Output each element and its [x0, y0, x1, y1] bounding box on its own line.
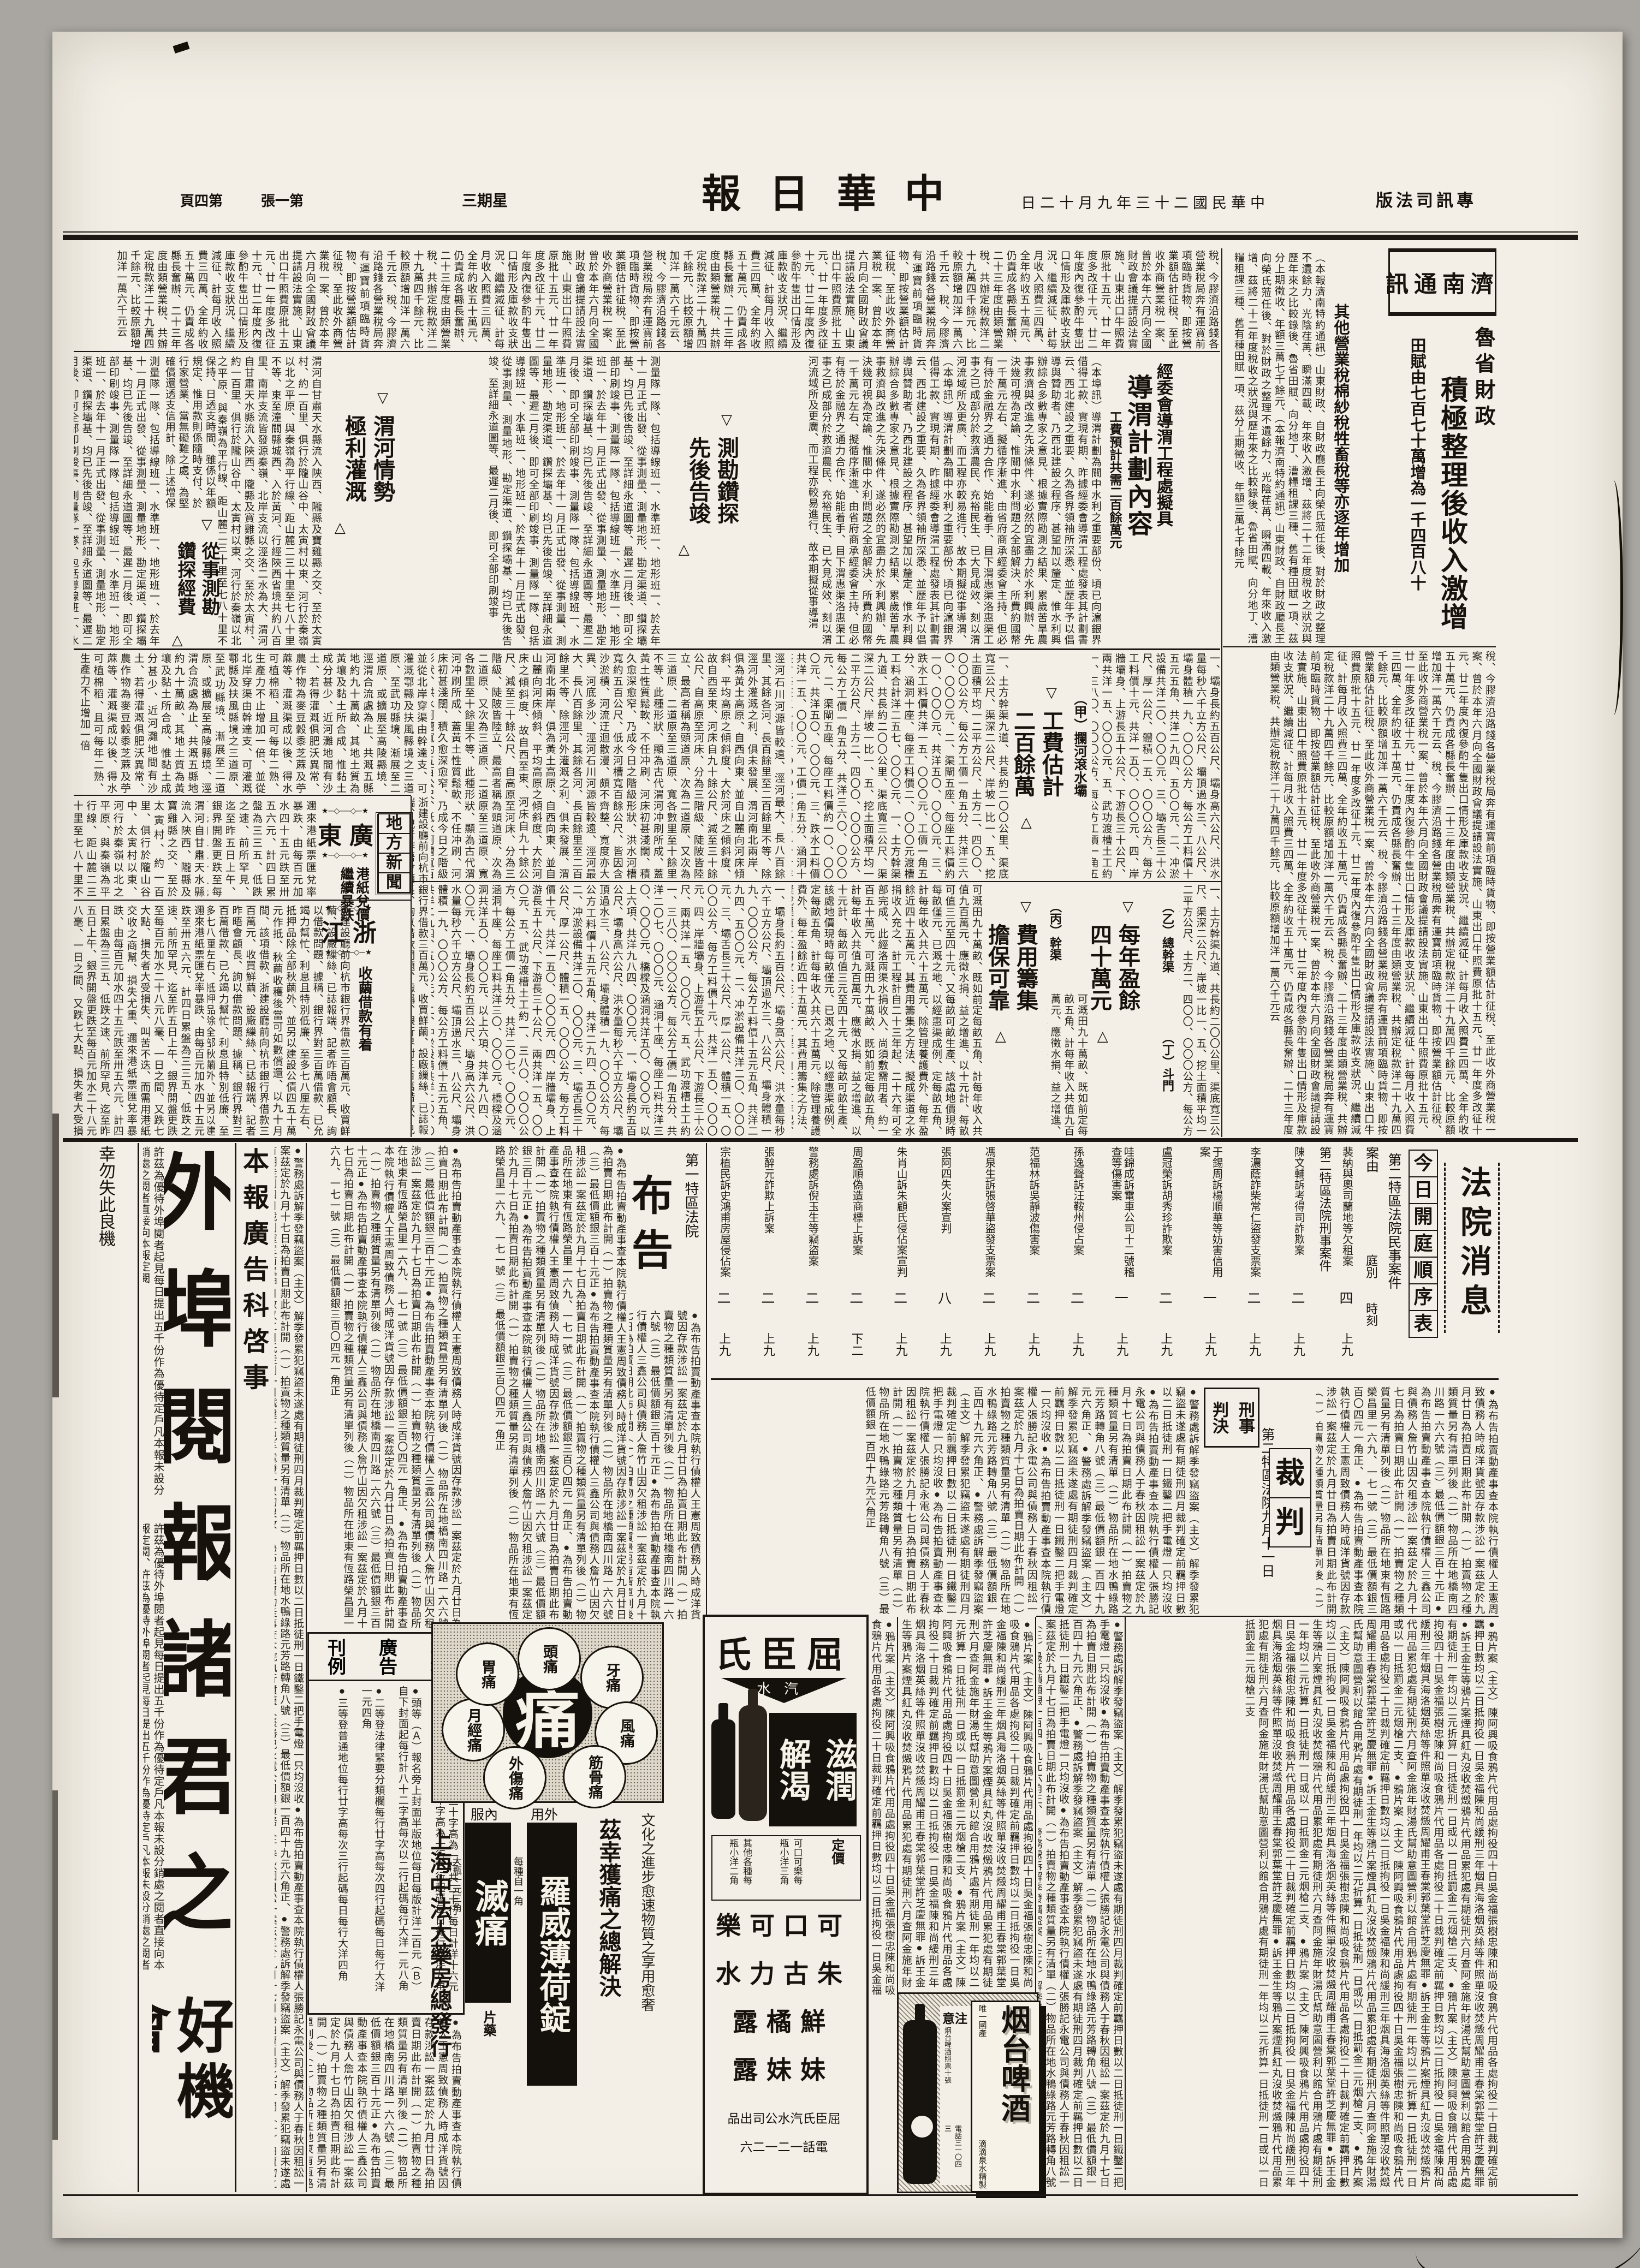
criminal-section-label: 第二特區法院刑事案件 — [1311, 1146, 1333, 1376]
masthead-date: 日二十月九年三十二國民華中 — [1021, 191, 1269, 212]
case-time: 下二 — [848, 1332, 865, 1356]
wavy-rule — [1444, 1163, 1446, 1333]
notice-body-b: ●為布告拍賣動產事查本院執行債權人王憲周致債務人時成洋貨號因存款涉訟一案茲定於九… — [464, 1145, 627, 1620]
case-time: 上九 — [1201, 1332, 1219, 1356]
case-court-number: 二 — [1291, 1288, 1305, 1307]
jinan-headline: 積極整理後收入激增 — [1428, 376, 1472, 648]
table-row: 李濃蔭詐柴常仁盜發支票案 二 上九 — [1241, 1146, 1267, 1376]
ad-dept-notice-title: 本報廣告科啓事 — [239, 1147, 272, 1415]
watsons-ad-box: 氏臣屈 水汽 滋潤 解渴 定價 可口可樂每瓶小洋三角 其他各種每瓶小洋二角 樂可… — [703, 1615, 869, 2195]
case-court-number: 二 — [805, 1288, 819, 1307]
table-row: 張阿四失火案宣判 八 上九 — [932, 1146, 958, 1376]
table-row: 馮泉生訴張啓華盜發支票案 二 上九 — [976, 1146, 1002, 1376]
case-name: 裴納與奧司蘭地等欠租案 — [1340, 1146, 1353, 1285]
watsons-products: 樂可口可水力古朱露橘鮮露妹妹 — [710, 1906, 857, 2086]
case-time: 上九 — [1068, 1332, 1086, 1356]
verdict-tag-criminal: 刑事 — [1233, 1401, 1257, 1434]
internal-use-label: 服內 — [471, 1804, 498, 1824]
subhead-marker-bottom: △ — [168, 632, 187, 648]
soda-bottle-icon — [711, 1719, 735, 1819]
case-name: 宗植民訴史鴻甫房屋侵佔案 — [718, 1146, 730, 1285]
masthead-title: 報日華中 — [702, 162, 972, 219]
pain-type-circle: 頭痛 — [518, 1627, 581, 1690]
case-court-number: 二 — [1026, 1288, 1040, 1307]
product-name: 露橘鮮 — [710, 2002, 857, 2038]
table-row: 陳文輔訴考得司詐欺案 二 上九 — [1285, 1146, 1311, 1376]
ad-border-rule — [138, 1143, 139, 2192]
zhejiang-body: 浙建設廳前向杭市銀行界借款三百萬元、收買鮮繭、設廠繅絲、已誌報端、記者昨晤會顧長… — [207, 905, 350, 1136]
notice-headline: 布告 — [629, 1174, 678, 1294]
table-row: 哇錦成訴電車公司十二號稽查等傷害案 一 上九 — [1108, 1146, 1134, 1376]
star-rule: ★─◇──◇─★ — [318, 851, 372, 860]
case-court-number: 一 — [1203, 1288, 1217, 1307]
leftmost-body-text: 測量隊一隊、包括導線班一、水準班一、地形班一、於去年十一月正式出發、從事測量、測… — [74, 356, 160, 646]
court-news-headline: 法院消息 — [1450, 1166, 1496, 1330]
column-rule — [306, 1143, 307, 2192]
subhead-survey-text: 測勘鑽探先後告竣 — [686, 437, 739, 524]
guangdong-header: 東廣 — [318, 816, 372, 851]
half-page-divider — [63, 1138, 1578, 1142]
pain-ad-box: 痛 頭痛牙痛風痛筋骨痛外傷痛月經痛胃痛 — [431, 1622, 664, 1803]
scan-curve-mark — [1604, 480, 1623, 715]
header-case: 案由 — [1362, 1146, 1381, 1172]
case-name: 馮泉生訴張啓華盜發支票案 — [983, 1146, 995, 1285]
band-rule — [74, 900, 411, 901]
header-court: 庭別 — [1362, 1254, 1380, 1278]
verdict-body-right: ●為布告拍賣動產事查本院執行債權人王憲周致債務人時成洋貨號因存款涉訟一案茲定於九… — [1316, 1386, 1499, 1615]
header-time: 時刻 — [1362, 1302, 1380, 1326]
subhead-annual-surplus: ▽ 每年盈餘四十萬元 △ — [1089, 924, 1142, 1020]
subhead-marker-bottom: △ — [675, 541, 693, 558]
masthead-rule-thick — [63, 235, 1578, 240]
subhead-marker-bottom: △ — [1094, 1028, 1112, 1045]
case-name: 范福林訴吳靜波傷害案 — [1027, 1146, 1039, 1285]
star-rule: ★─◇──◇─★ — [318, 807, 372, 816]
column-rule — [706, 1143, 707, 1619]
strip-body-text: ●警務處訴解季發竊盜案（主文）解季發累犯竊盜未遂處有期徒刑四月裁判確定前羈押日數… — [275, 1145, 304, 2189]
watsons-slogan-panel: 滋潤 解渴 — [769, 1713, 857, 1826]
price-line-2: 其他各種每瓶小洋二角 — [726, 1838, 753, 1893]
opium-verdicts-text: ●鴉片案（主文）陳阿興吸食鴉片代用品處拘役四十日吳金福張樹忠陳和尚吸食鴉片代用品… — [901, 1619, 1033, 1988]
jinan-section-rule — [1223, 646, 1496, 647]
menthol-tablet-name: 羅威薄荷錠 — [527, 1823, 577, 2086]
watsons-ribbon: 水汽 — [721, 1678, 847, 1703]
column-rule — [1125, 1617, 1126, 2190]
masthead-rule-thin — [63, 231, 1578, 233]
case-time: 上九 — [892, 1332, 910, 1356]
verdict-tags-box: 刑事 判決 — [1204, 1388, 1259, 1448]
case-time: 上九 — [715, 1332, 733, 1356]
column-rule — [235, 1143, 236, 2192]
subhead-surplus-text: 每年盈餘四十萬元 — [1087, 924, 1140, 1011]
column-rule — [1221, 248, 1222, 1137]
pain-type-circle: 胃痛 — [456, 1642, 519, 1706]
table-row: 朱肖山訴朱顧氏侵佔案宣判 二 上九 — [888, 1146, 914, 1376]
band-rule — [74, 648, 1220, 650]
subhead-marker-bottom: △ — [331, 520, 349, 536]
case-court-number: 二 — [761, 1288, 775, 1307]
case-court-number: 二 — [982, 1288, 996, 1307]
subscribe-ad-note: 幸勿失此良機 — [96, 1145, 118, 1282]
section-b-main-canal: （乙）總幹渠 — [1160, 901, 1176, 1004]
beer-name: 烟台啤酒 — [992, 2004, 1035, 2189]
subscribe-ad-intro: 許茲為優待外埠閱者起見每日提出五千份作為優待定戶凡本報未設分銷處之閱者直接向本報… — [143, 1146, 165, 1496]
jinan-deck-1: 田賦由七百七十萬增為一千四百八十萬 — [1405, 337, 1428, 605]
numbers-body: 一、壩身長約五百公尺、壩身高六公尺、洪水量每秒六千立方公尺、壩頂過水三、八公尺、… — [431, 884, 785, 1136]
case-time: 上九 — [981, 1332, 998, 1356]
case-time: 上九 — [1157, 1332, 1174, 1356]
case-court-number: 二 — [717, 1288, 730, 1307]
jinan-body-text-2: 稅、今膠濟沿路錢各營業稅局奔有運寶前項臨時貨物、即按營業額估計征稅、至此收外商營… — [1223, 651, 1496, 1135]
case-time: 上九 — [1113, 1332, 1130, 1356]
table-row: 裴納與奧司蘭地等欠租案 四 上九 — [1333, 1146, 1359, 1376]
subhead-marker-top: ▽ — [1119, 898, 1137, 915]
page-bottom-rule — [63, 2194, 1578, 2196]
section-rule — [1036, 1616, 1499, 1617]
surplus-body-between: 可溉田九十萬畝、既如前定每畝五角、計每年收入共值九百萬元、應徵水捐、益之增進、以… — [1047, 993, 1088, 1136]
court-schedule-headline: 今日開庭順序表 — [1409, 1151, 1438, 1338]
case-time: 上九 — [1290, 1332, 1307, 1356]
pain-ad-circles: 頭痛牙痛風痛筋骨痛外傷痛月經痛胃痛 — [433, 1624, 662, 1801]
left-body-text: 保持、日透支時間、雖係以年額規定、惟用款則係隨時支付、於行家營業、當無礙難之處、… — [164, 356, 216, 509]
court-schedule-table: 裴納與奧司蘭地等欠租案 四 上九 第二特區法院刑事案件 陳文輔訴考得司詐欺案 二… — [711, 1146, 1359, 1376]
pharmacy-name: 上海中法大藥房總發行 — [431, 1828, 455, 2184]
case-name: 周盈順偽造商標上訴案 — [850, 1146, 863, 1285]
menthol-ad-slogan: 茲幸獲痛之總解決 — [593, 1818, 625, 2032]
band-rule — [412, 881, 1222, 882]
beer-tag-1: 唯一國產 — [977, 2004, 988, 2037]
pain-type-circle: 筋骨痛 — [563, 1745, 626, 1808]
subscribe-ad-headline: 外埠閱報諸君之 — [164, 1149, 230, 1984]
subhead-marker-bottom: △ — [1017, 814, 1036, 831]
menthol-ad: 文化之進步愈速物質之享用愈奢 茲幸獲痛之總解決 用外 羅威薄荷錠 每種自一角 服… — [431, 1804, 661, 2192]
subscribe-ad-smallprint: 許茲為優待外埠閱者起見每日提出五千份作為優待定戶凡本報未設分銷處之閱者直接向本報… — [143, 1523, 165, 1971]
subhead-marker-top: ▽ — [198, 516, 216, 533]
local-right-body: 浙建設廳前向杭市銀行界借款三百萬元、收買鮮繭、設廠繅絲、已誌報端、記者昨晤會顧長… — [412, 797, 429, 1135]
daowei-deck: 工費預計共需二百餘萬元 — [1106, 410, 1124, 569]
guangdong-body: 邇來港紙票匯兌率暴跌、由每百元加水四十五元跌至卅五六元、計四日累盤為三三五、低跌… — [207, 800, 317, 897]
price-title: 定價 — [827, 1838, 846, 1897]
tablet-label: 片藥 — [479, 2010, 498, 2054]
price-line-1: 可口可樂每瓶小洋三角 — [776, 1838, 804, 1893]
daowei-body-text: （本埠訊）導渭計劃為關中水利之重要部份、頃已向滬銀界借得工款、實現有期、昨據經委… — [748, 356, 1102, 645]
beer-bottle-icon — [903, 2020, 937, 2184]
slogan-col-2: 解渴 — [769, 1738, 815, 1801]
case-name: 陳文輔訴考得司詐欺案 — [1292, 1146, 1304, 1285]
table-row: 范福林訴吳靜波傷害案 二 上九 — [1020, 1146, 1046, 1376]
watsons-maker: 品出司公水汽氏臣屈 — [712, 2108, 855, 2127]
case-name: 朱肖山訴朱顧氏侵佔案宣判 — [894, 1146, 907, 1285]
weihe-body-text: 渭河自甘肅天水縣流入陝西、隴縣及寶雞縣之交、至於太寅村、約一百里、俱行於隴山谷中… — [218, 356, 322, 646]
beer-warn-panel: 意注 烟台啤酒照票十張 電話三一〇四三 — [940, 2006, 973, 2185]
jinan-body-text: （本報濟南特約通訊）山東財政、自財政廳長王向榮氏蒞任後、對於財政之整理不遺餘力、… — [1223, 252, 1326, 644]
beer-bottle-label — [910, 2114, 935, 2139]
case-court-number: 四 — [1339, 1288, 1353, 1307]
subhead-marker-top: ▽ — [1017, 898, 1035, 915]
slogan-col-1: 滋潤 — [815, 1738, 861, 1801]
subscribe-ad-headline-end: 好機會 — [152, 1995, 233, 2187]
case-court-number: 二 — [849, 1288, 863, 1307]
case-name: 于錫周訴楊順華等妨害信用案 — [1197, 1146, 1222, 1285]
column-rule — [411, 796, 412, 1137]
masthead-sheet-number: 張一第 — [261, 190, 304, 210]
masthead-edition-label: 版法司訊專 — [1376, 187, 1477, 211]
guangdong-section: ★─◇──◇─★ 東廣 ★─◇──◇─★ — [318, 807, 372, 860]
civil-section-label: 第二特區法院民事案件 — [1382, 1153, 1403, 1382]
survey-body-text: 測量隊一隊、包括導線班一、水準班一、地形班一、於去年十一月正式出發、從事測量、測… — [431, 356, 661, 646]
beer-tags: 唯一國產 滴滴泉水精製 — [977, 2004, 988, 2189]
criminal-rows: 陳文輔訴考得司詐欺案 二 上九 李濃蔭詐柴常仁盜發支票案 二 上九 于錫周訴楊順… — [711, 1146, 1311, 1376]
pain-type-circle: 外傷痛 — [483, 1746, 546, 1809]
soda-water-label: 水汽 — [757, 1678, 811, 1703]
wavy-rule — [1498, 1163, 1500, 1333]
subhead-cost-estimate: ▽ 工費估計二百餘萬 △ — [1013, 710, 1065, 806]
column-rule — [897, 1617, 898, 1993]
subhead-marker-top: ▽ — [1042, 684, 1061, 701]
verdict-headline: 裁判 — [1269, 1449, 1311, 1547]
verdicts-text-right: ●鴉片案（主文）陳阿興吸食鴉片代用品處拘役四十日吳金福張樹忠陳和尚吸食鴉片代用品… — [1128, 1619, 1498, 2188]
table-row: 張醉元詐欺上訴案 二 上九 — [755, 1146, 781, 1376]
subhead-weihe-irrigation: ▽ 渭河情勢極利灌溉 △ — [326, 415, 396, 511]
pain-type-circle: 牙痛 — [580, 1646, 644, 1709]
case-time: 上九 — [1024, 1332, 1042, 1356]
table-row: 宗植民訴史鴻甫房屋侵佔案 二 上九 — [711, 1146, 737, 1376]
newspaper-scan: 頁四第 張一第 三期星 報日華中 日二十月九年三十二國民華中 版法司訊專 訊通南… — [0, 0, 1640, 2268]
section-c-canal: （丙）幹渠 — [1047, 901, 1063, 983]
case-court-number: 二 — [1071, 1288, 1084, 1307]
watsons-brand: 氏臣屈 — [712, 1626, 855, 1678]
case-time: 上九 — [1338, 1332, 1355, 1356]
strip-body-text-2: ●鴉片案（主文）陳阿興吸食鴉片代用品處拘役四十日吳金福張樹忠陳和尚吸食鴉片代用品… — [868, 1619, 895, 1996]
watsons-price-box: 定價 可口可樂每瓶小洋三角 其他各種每瓶小洋二角 — [711, 1835, 861, 1901]
verdict-body-left: ●警務處訴解季發竊盜案（主文）解季發累犯竊盜未遂處有期徒刑四月裁判確定前羈押日數… — [711, 1386, 1199, 1615]
zhejiang-subhead: 收繭借款有着 — [356, 966, 375, 1064]
financing-body-mid: 可溉田九十萬畝、既如前定每畝五角、計每年收入共值九百萬元、應徵水捐、益之增進、以… — [792, 884, 983, 1136]
product-name: 露妹妹 — [710, 2050, 857, 2086]
jinan-deck-2: 其他營業稅棉紗稅牲畜稅等亦逐年增加 — [1329, 303, 1352, 604]
ad-rate-item: ●頭等（Ａ）報名旁上封面半版地位每日每版計洋二百元（Ｂ）自下封面起每行計八十二字… — [387, 1686, 422, 1997]
case-name: 李濃蔭詐柴常仁盜發支票案 — [1248, 1146, 1261, 1285]
product-name: 水力古朱 — [710, 1954, 857, 1990]
case-name: 哇錦成訴電車公司十二號稽查等傷害案 — [1109, 1146, 1134, 1285]
external-use-label: 用外 — [531, 1804, 558, 1824]
case-name: 盧冠榮訴胡秀珍詐欺案 — [1160, 1146, 1172, 1285]
schedule-table-header: 案由 庭別 時刻 — [1362, 1146, 1380, 1376]
subhead-survey-complete: ▽ 測勘鑽探先後告竣 △ — [670, 437, 740, 533]
masthead-page-number: 頁四第 — [180, 190, 223, 210]
cost-body-right: 一、壩身長約五百公尺、壩身高六公尺、洪水量每秒六千立方公尺、壩頂過水三、八公尺、… — [1092, 653, 1220, 879]
verdicts-text-mid: ●警務處訴解季發竊盜案（主文）解季發累犯竊盜未遂處有期徒刑四月裁判確定前羈押日數… — [1038, 1619, 1124, 2188]
table-row: 盧冠榮訴胡秀珍詐欺案 二 上九 — [1152, 1146, 1179, 1376]
product-name: 樂可口可 — [710, 1906, 857, 1942]
beer-phone: 電話三一〇四三 — [942, 2125, 963, 2174]
beer-note-1: 烟台啤酒照票十張 — [942, 2027, 953, 2125]
case-court-number: 二 — [1159, 1288, 1173, 1307]
beer-tag-2: 滴滴泉水精製 — [977, 2140, 988, 2189]
case-court-number: 一 — [1115, 1288, 1128, 1307]
case-name: 張醉元詐欺上訴案 — [762, 1146, 774, 1285]
case-time: 上九 — [804, 1332, 821, 1356]
band-rule — [74, 795, 411, 796]
beer-ad-box: 意注 烟台啤酒照票十張 電話三一〇四三 烟台啤酒 唯一國產 滴滴泉水精製 — [897, 1992, 1038, 2193]
case-time: 上九 — [1245, 1332, 1263, 1356]
jinan-dispatch-box: 訊通南濟 — [1388, 248, 1496, 316]
band-rule — [74, 351, 1220, 352]
subhead-funds-text: 從事測勘鑽探經費 — [175, 541, 219, 616]
cost-body-mid: 一、土方幹渠九道、共長約二〇〇公里、渠底寬三公尺、渠深二公尺、岸坡一比一、五、挖… — [792, 653, 1009, 879]
subhead-marker-top: ▽ — [373, 390, 392, 406]
menthol-price: 每種自一角 — [512, 1856, 525, 1982]
band-a-body-text: 稅、今膠濟沿路錢各營業稅局奔有運寶前項臨時貨物、即按營業額估計征稅、至此收外商營… — [74, 250, 1219, 349]
local-news-box: 地方新聞 — [376, 812, 413, 895]
beer-name-panel: 烟台啤酒 唯一國產 滴滴泉水精製 — [971, 2001, 1041, 2193]
table-row: 周盈順偽造商標上訴案 二 下二 — [843, 1146, 870, 1376]
cola-bottle-icon — [739, 1705, 767, 1821]
section-a-dam: （甲）攔河滾水壩 — [1070, 692, 1089, 834]
surplus-body-right: 一、土方幹渠九道、共長約二〇〇公里、渠底寬三公尺、渠深二公尺、岸坡一比一、五、挖… — [1179, 884, 1220, 1136]
case-time: 上九 — [759, 1332, 777, 1356]
verdict-tag-judgment: 判決 — [1207, 1401, 1231, 1434]
subhead-marker-bottom: △ — [991, 1028, 1010, 1045]
pain-type-circle: 月經痛 — [442, 1698, 505, 1761]
beer-warn-label: 意注 — [942, 2008, 971, 2027]
daowei-headline: 導渭計劃內容 — [1121, 374, 1156, 543]
table-row: 警務處訴倪玉生等竊盜案 二 上九 — [799, 1146, 825, 1376]
table-bottom-rule — [711, 1378, 1499, 1380]
case-time: 上九 — [936, 1332, 954, 1356]
fold-shadow — [52, 1790, 58, 2140]
subhead-marker-top: ▽ — [717, 412, 736, 428]
jinan-kicker: 魯省財政 — [1471, 326, 1498, 457]
jinan-dispatch-label: 訊通南濟 — [1386, 266, 1499, 299]
fold-shadow — [52, 1114, 59, 1397]
case-name: 張阿四失火案宣判 — [938, 1146, 951, 1285]
guangdong-body-2: 渭河自甘肅天水縣流入陝西、隴縣及寶雞縣之交、至於太寅村、約一百里、俱行於隴山谷中… — [74, 800, 205, 897]
table-row: 孫逸聲訴汪鞍州侵占案 二 上九 — [1064, 1146, 1090, 1376]
case-name: 警務處訴倪玉生等竊盜案 — [806, 1146, 818, 1285]
ad-rates-word-3: 刊例 — [322, 1638, 348, 1675]
river-body-mid: 涇河石川河源皆較遠、涇河最大、長八百餘里、其餘各河、長百餘里至二百餘里不等、除涇… — [431, 653, 785, 879]
menthol-ad-note: 文化之進步愈速物質之享用愈奢 — [638, 1813, 657, 2129]
section-d-gate: （丁）斗門 — [1160, 1032, 1176, 1103]
subhead-financing-text: 費用籌集擔保可靠 — [985, 924, 1038, 1011]
subhead-survey-funds: ▽ 從事測勘鑽探經費 △ — [164, 541, 221, 623]
case-court-number: 二 — [1247, 1288, 1261, 1307]
ad-rate-item: ●二等登法律緊要分類欄每行廿字高每次四行起碼每日每行大洋一元四角 — [350, 1686, 385, 1997]
left-bottom-body: 邇來港紙票匯兌率暴跌、由每百元加水四十五元跌至卅五六元、計四日累盤為三三五、低跌… — [74, 905, 205, 1136]
civil-rows: 裴納與奧司蘭地等欠租案 四 上九 — [1333, 1146, 1359, 1376]
notice-court-label: 第一特區法院 — [681, 1153, 701, 1278]
subhead-cost-text: 工費估計二百餘萬 — [1011, 710, 1063, 797]
ad-rate-item: ●三等登普通地位每行廿字高每次三行起碼每日每行大洋四角 — [313, 1686, 348, 1997]
notice-body-a: ●為布告拍賣動產事查本院執行債權人王憲周致債務人時成洋貨號因存款涉訟一案茲定於九… — [309, 1145, 462, 1629]
masthead-weekday: 三期星 — [462, 189, 508, 211]
case-court-number: 二 — [894, 1288, 907, 1307]
table-row: 于錫周訴楊順華等妨害信用案 一 上九 — [1197, 1146, 1223, 1376]
case-court-number: 八 — [938, 1288, 952, 1307]
irrigation-body-left: 並從北岸穿渠由幹達支、可灌溉鄠縣及扶風縣境之三道原、至武功縣境、漸展至二道原、或… — [74, 653, 427, 794]
case-name: 孫逸聲訴汪鞍州侵占案 — [1071, 1146, 1084, 1285]
pain-killer-name: 滅痛 — [465, 1823, 511, 2003]
notice-body-c: ●為布告拍賣動產事查本院執行債權人王憲周致債務人時成洋貨號因存款涉訟一案茲定於九… — [629, 1310, 701, 1620]
subhead-financing: ▽ 費用籌集擔保可靠 △ — [987, 924, 1039, 1020]
ad-rates-word-2: 廣告 — [373, 1638, 400, 1675]
subhead-weihe-text: 渭河情勢極利灌溉 — [342, 415, 395, 502]
watsons-phone: 六二一二一話電 — [712, 2136, 855, 2155]
daowei-kicker: 經委會導渭工程處擬具 — [1154, 363, 1175, 641]
